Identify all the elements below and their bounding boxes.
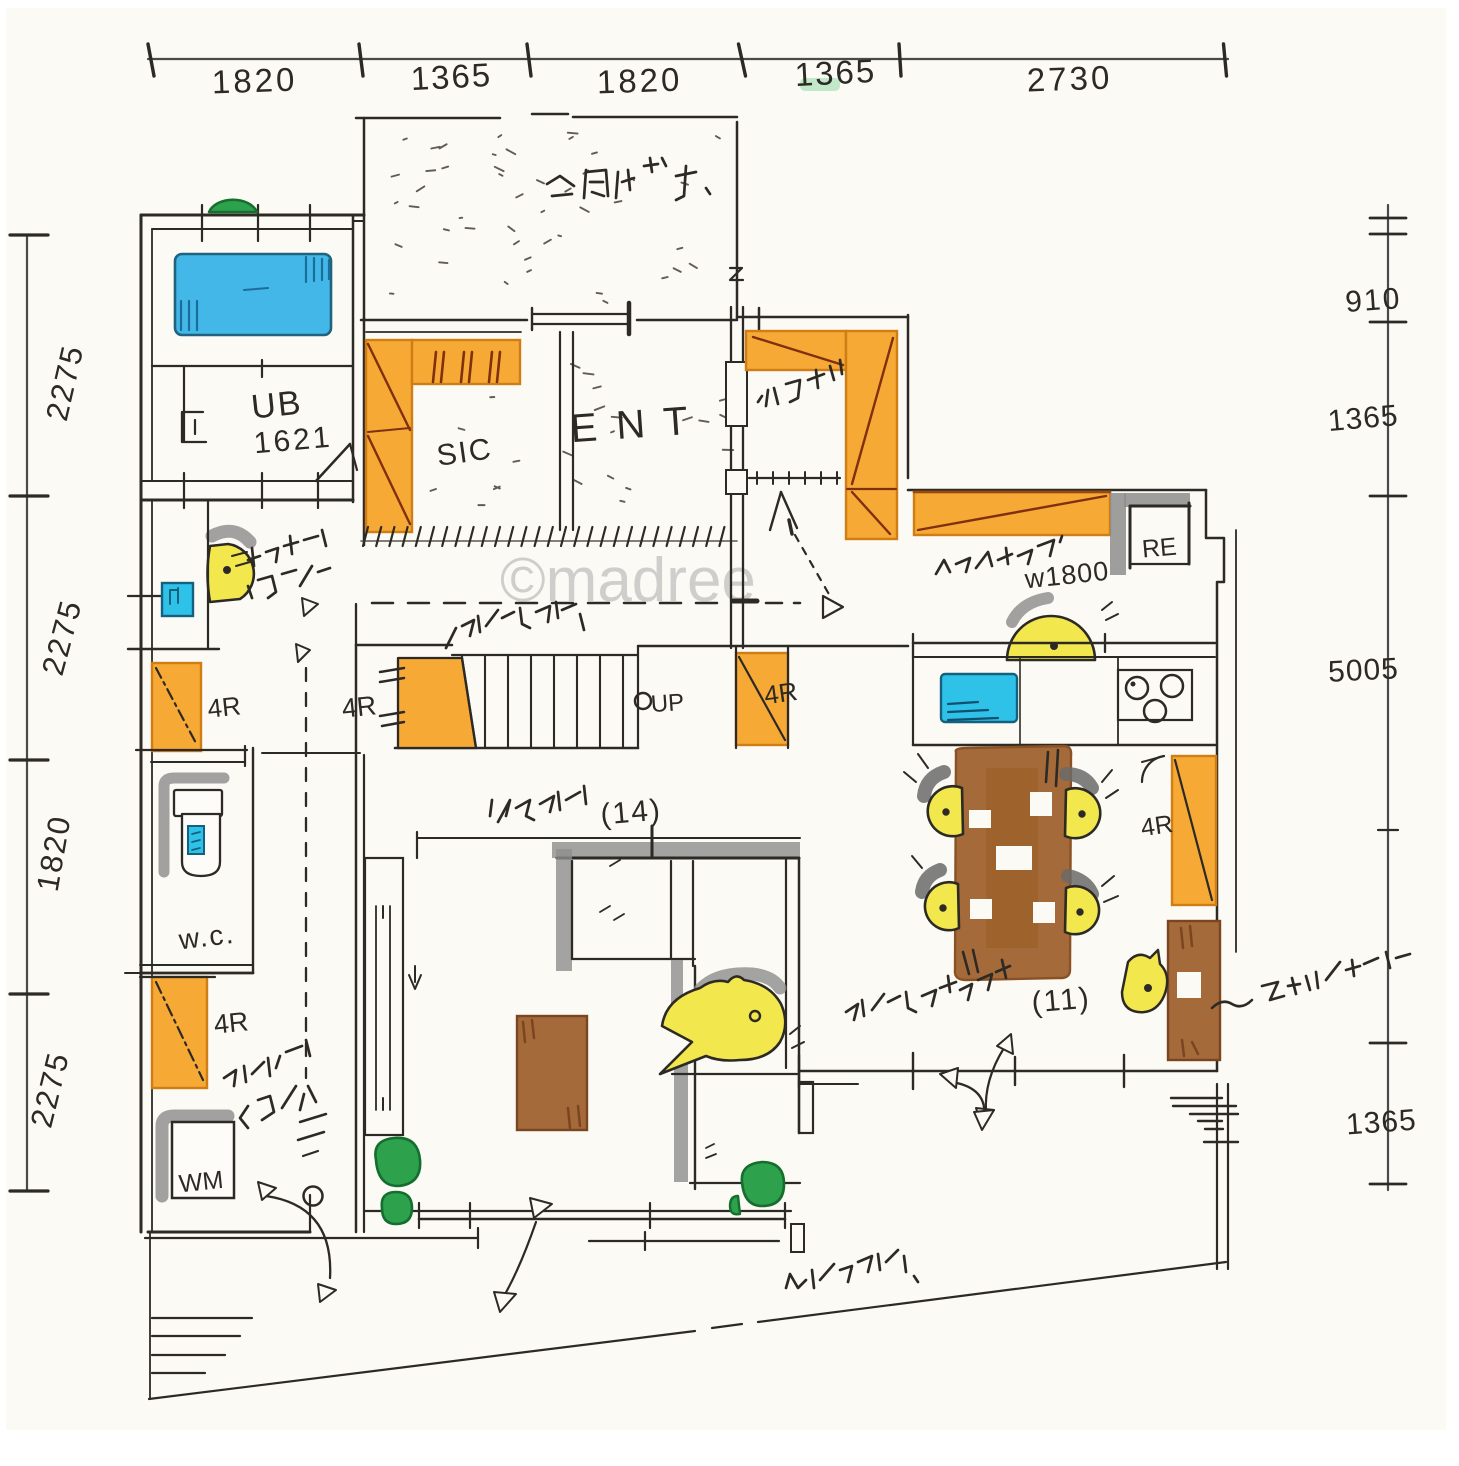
svg-text:(11): (11) <box>1030 982 1092 1020</box>
svg-text:1365: 1365 <box>1345 1104 1418 1142</box>
svg-text:5005: 5005 <box>1327 652 1399 689</box>
svg-text:RE: RE <box>1141 533 1178 564</box>
svg-text:4R: 4R <box>206 690 242 723</box>
svg-text:2730: 2730 <box>1026 59 1113 99</box>
svg-text:1621: 1621 <box>253 421 334 461</box>
svg-text:1365: 1365 <box>794 52 877 93</box>
svg-text:4R: 4R <box>212 1006 249 1039</box>
svg-text:UP: UP <box>650 689 685 718</box>
svg-text:UB: UB <box>249 383 304 426</box>
svg-text:4R: 4R <box>762 676 799 710</box>
svg-text:1365: 1365 <box>410 56 493 97</box>
svg-text:1365: 1365 <box>1326 399 1399 438</box>
svg-text:1820: 1820 <box>211 61 298 101</box>
svg-text:(14): (14) <box>599 793 663 831</box>
svg-text:E N T: E N T <box>569 399 693 451</box>
svg-text:1820: 1820 <box>596 61 683 101</box>
svg-text:4R: 4R <box>1139 810 1175 842</box>
svg-text:©madree: ©madree <box>500 546 756 615</box>
svg-text:4R: 4R <box>340 690 377 723</box>
svg-text:910: 910 <box>1344 282 1402 319</box>
svg-text:WM: WM <box>178 1166 225 1198</box>
